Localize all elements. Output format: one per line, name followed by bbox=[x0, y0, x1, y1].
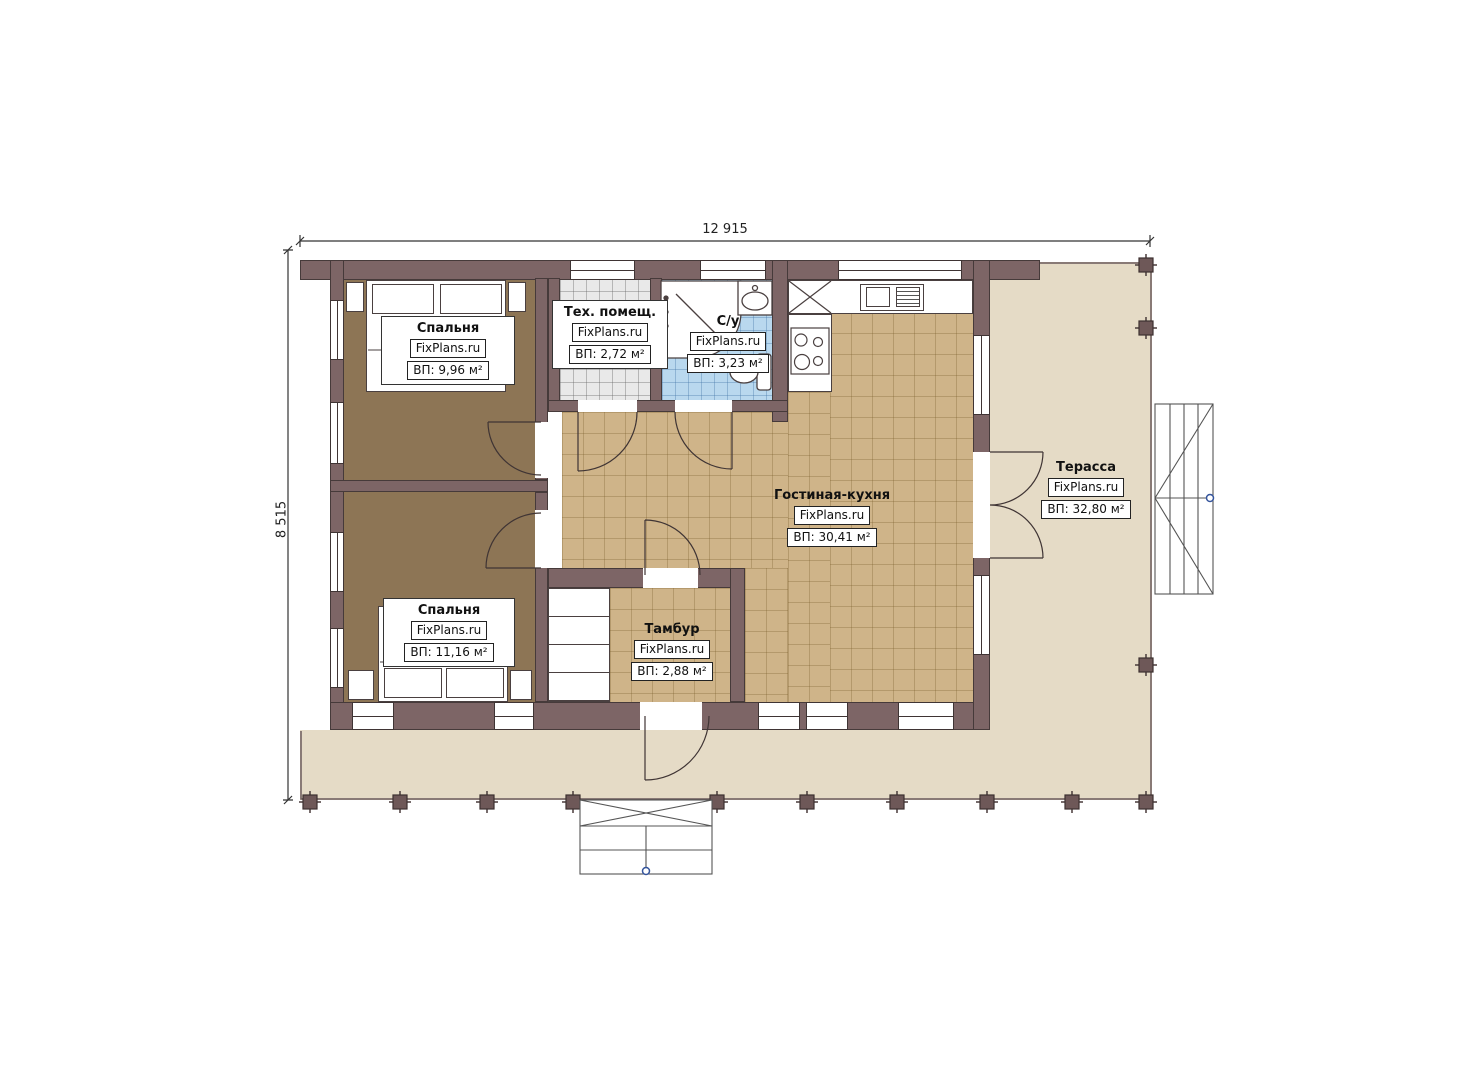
kitchen-appliances bbox=[789, 281, 831, 374]
dimension-height-label: 8 515 bbox=[275, 490, 290, 550]
room-area: ВП: 2,88 м² bbox=[631, 662, 713, 681]
room-name: Тамбур bbox=[644, 622, 699, 637]
room-label-tech: Тех. помещ. FixPlans.ru ВП: 2,72 м² bbox=[552, 300, 668, 369]
dimension-width-label: 12 915 bbox=[675, 222, 775, 237]
room-label-terrace: Терасса FixPlans.ru ВП: 32,80 м² bbox=[1036, 460, 1136, 519]
tambur-door bbox=[645, 520, 700, 575]
watermark: FixPlans.ru bbox=[411, 621, 488, 640]
room-name: Тех. помещ. bbox=[564, 305, 656, 320]
room-area: ВП: 9,96 м² bbox=[407, 361, 489, 380]
bedroom2-door bbox=[486, 513, 541, 568]
bath-door bbox=[675, 412, 732, 469]
room-name: Спальня bbox=[417, 321, 479, 336]
room-area: ВП: 32,80 м² bbox=[1041, 500, 1130, 519]
room-name: Гостиная-кухня bbox=[774, 488, 890, 503]
room-area: ВП: 3,23 м² bbox=[687, 354, 769, 373]
room-area: ВП: 11,16 м² bbox=[404, 643, 493, 662]
room-name: С/у bbox=[717, 314, 740, 329]
watermark: FixPlans.ru bbox=[634, 640, 711, 659]
tech-door bbox=[578, 412, 637, 471]
room-label-bedroom-2: Спальня FixPlans.ru ВП: 11,16 м² bbox=[383, 598, 515, 667]
watermark: FixPlans.ru bbox=[410, 339, 487, 358]
room-label-bathroom: С/у FixPlans.ru ВП: 3,23 м² bbox=[684, 314, 772, 373]
watermark: FixPlans.ru bbox=[690, 332, 767, 351]
room-label-living-kitchen: Гостиная-кухня FixPlans.ru ВП: 30,41 м² bbox=[778, 488, 886, 547]
front-door bbox=[645, 716, 709, 780]
room-name: Спальня bbox=[418, 603, 480, 618]
bedroom1-door bbox=[488, 422, 541, 475]
room-label-tambur: Тамбур FixPlans.ru ВП: 2,88 м² bbox=[616, 622, 728, 681]
plan-linework bbox=[0, 0, 1473, 1080]
floor-plan: Спальня FixPlans.ru ВП: 9,96 м² Тех. пом… bbox=[0, 0, 1473, 1080]
stairs-marker bbox=[643, 868, 650, 875]
room-label-bedroom-1: Спальня FixPlans.ru ВП: 9,96 м² bbox=[381, 316, 515, 385]
stairs-marker bbox=[1207, 495, 1214, 502]
watermark: FixPlans.ru bbox=[572, 323, 649, 342]
room-area: ВП: 2,72 м² bbox=[569, 345, 651, 364]
watermark: FixPlans.ru bbox=[794, 506, 871, 525]
room-name: Терасса bbox=[1056, 460, 1116, 475]
room-area: ВП: 30,41 м² bbox=[787, 528, 876, 547]
watermark: FixPlans.ru bbox=[1048, 478, 1125, 497]
door-swings bbox=[486, 412, 1043, 780]
